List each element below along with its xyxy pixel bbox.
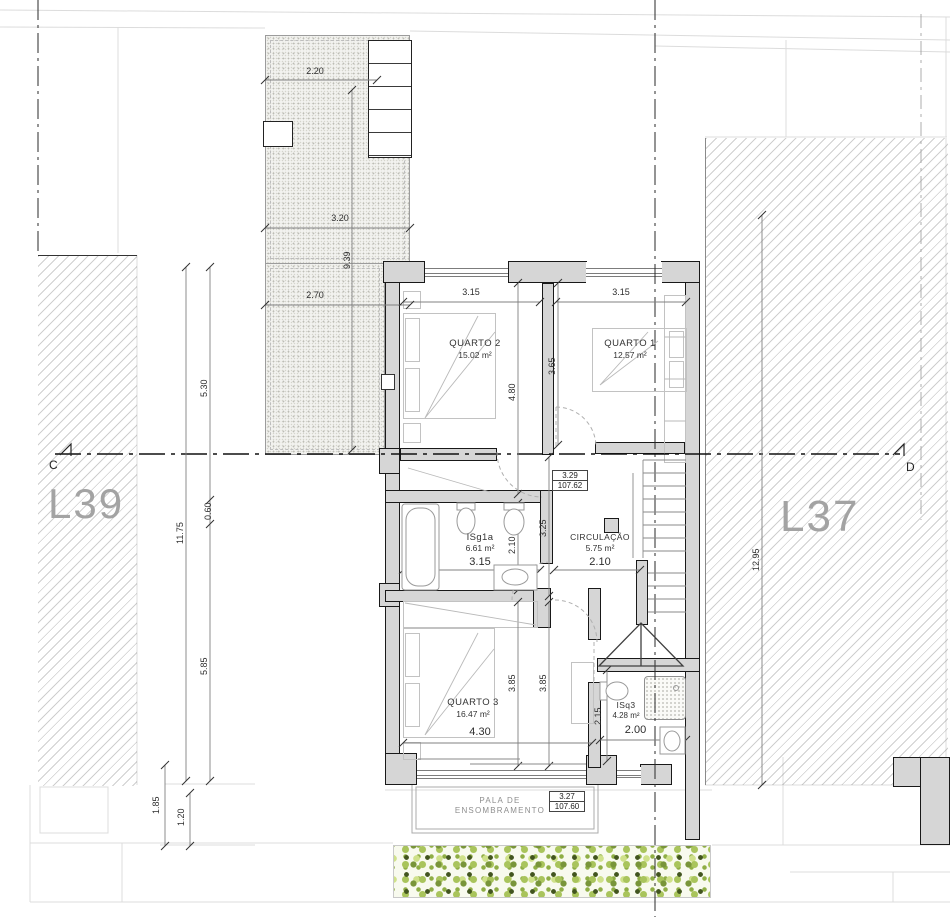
pillow bbox=[405, 368, 420, 412]
dim-terrace-mid: 3.20 bbox=[315, 213, 365, 223]
dim-left-total: 11.75 bbox=[175, 503, 189, 563]
dim-quarto1-height: 3.65 bbox=[547, 336, 561, 396]
dim-right-total: 12.95 bbox=[751, 530, 765, 590]
dim-terrace-low: 2.70 bbox=[290, 290, 340, 300]
dim-quarto2-height: 4.80 bbox=[507, 362, 521, 422]
garden-hedge bbox=[393, 845, 711, 898]
dim-left-upper: 5.30 bbox=[199, 358, 213, 418]
nightstand bbox=[403, 423, 421, 443]
level-relative: 3.29 bbox=[553, 471, 587, 480]
nightstand bbox=[403, 291, 421, 309]
wall-pier-top-mid bbox=[508, 261, 587, 283]
dim-terrace-length: 9.39 bbox=[342, 230, 356, 290]
window-isq3 bbox=[617, 770, 641, 778]
dim-isq3-width: 2.00 bbox=[608, 724, 663, 736]
wall-isg1a-top bbox=[385, 490, 543, 503]
dim-quarto3-width: 4.30 bbox=[430, 726, 530, 738]
dim-hall-height: 3.25 bbox=[538, 498, 552, 558]
wall-exterior-right bbox=[685, 263, 700, 840]
room-label-quarto1: QUARTO 1 bbox=[580, 338, 680, 349]
room-area-quarto1: 12.57 m² bbox=[580, 350, 680, 360]
stair-column bbox=[604, 518, 619, 533]
wall-isq3-top bbox=[597, 658, 700, 672]
roof-access-ladder bbox=[368, 40, 412, 158]
wardrobe-quarto1 bbox=[664, 295, 686, 463]
dim-quarto3-height-a: 3.85 bbox=[507, 653, 521, 713]
room-label-circulacao: CIRCULAÇÃO bbox=[548, 532, 652, 542]
room-label-isq3: ISq3 bbox=[601, 700, 651, 710]
level-absolute: 107.62 bbox=[553, 480, 587, 490]
pillow bbox=[405, 318, 420, 362]
dim-terrace-width: 2.20 bbox=[290, 66, 340, 76]
dim-left-small: 0.60 bbox=[203, 490, 217, 532]
wardrobe-quarto3 bbox=[403, 601, 538, 628]
dim-circulacao-width: 2.10 bbox=[548, 556, 652, 568]
dim-quarto3-height-b: 3.85 bbox=[538, 653, 552, 713]
floor-plan-drawing: 3.29 107.62 3.27 107.60 L39 L37 C D QUAR… bbox=[0, 0, 950, 917]
wall-pier-top-right bbox=[661, 261, 700, 283]
wall-stair-side bbox=[636, 560, 648, 625]
dim-quarto2-width: 3.15 bbox=[446, 287, 496, 297]
section-letter-d: D bbox=[906, 460, 915, 474]
window-left-small bbox=[381, 374, 395, 390]
wall-pier-bottom-right bbox=[640, 764, 672, 785]
pillow bbox=[405, 633, 420, 677]
nightstand bbox=[403, 742, 421, 760]
lot-label-left: L39 bbox=[48, 480, 124, 528]
window-q2 bbox=[425, 268, 508, 277]
terrace-hatch-box bbox=[263, 121, 293, 147]
dim-isq3-height: 2.15 bbox=[593, 692, 607, 740]
neighbour-wall-vertical bbox=[920, 757, 950, 845]
wall-pier-top-left bbox=[383, 261, 425, 283]
canopy-label-line2: ENSOMBRAMENTO bbox=[420, 806, 580, 815]
room-area-quarto2: 15.02 m² bbox=[425, 350, 525, 360]
window-q3 bbox=[417, 770, 586, 779]
pillow bbox=[405, 683, 420, 727]
dim-left-lower: 5.85 bbox=[199, 636, 213, 696]
room-label-quarto2: QUARTO 2 bbox=[425, 338, 525, 349]
wall-exterior-left bbox=[385, 263, 400, 783]
wall-circ-stub bbox=[588, 588, 601, 640]
wall-bump-left-1 bbox=[379, 448, 400, 474]
dim-bottom-a: 1.85 bbox=[151, 780, 165, 830]
wall-vestibule-top bbox=[400, 448, 497, 461]
room-area-circulacao: 5.75 m² bbox=[548, 543, 652, 553]
dim-bottom-b: 1.20 bbox=[176, 795, 190, 839]
dim-isg1a-height: 2.10 bbox=[507, 520, 521, 570]
section-letter-c: C bbox=[49, 458, 58, 472]
desk-quarto3 bbox=[571, 662, 594, 724]
window-q1 bbox=[586, 268, 662, 277]
canopy-label-line1: PALA DE bbox=[420, 796, 580, 805]
dim-quarto1-width: 3.15 bbox=[596, 287, 646, 297]
level-marker-hall: 3.29 107.62 bbox=[552, 470, 588, 491]
lot-label-right: L37 bbox=[780, 492, 859, 542]
